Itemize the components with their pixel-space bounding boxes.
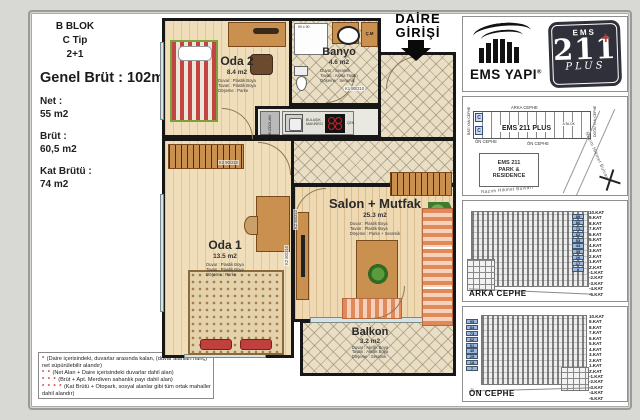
kitchen-strip: BUZDOLABI BULAŞIK MAKİNESİ ÇEK. — [255, 106, 381, 138]
entrance-line2: GİRİŞİ — [380, 26, 456, 40]
company-name: EMS YAPI® — [470, 67, 542, 82]
pillow — [200, 339, 232, 350]
site-building-outline: C C EMS 211 PLUS A BLOK — [473, 111, 591, 139]
sofa-cushion-line — [423, 247, 452, 249]
unit-number-cell: 40 — [466, 348, 478, 353]
kitchen-counter: BULAŞIK MAKİNESİ ÇEK. — [282, 111, 354, 135]
room-count: 2+1 — [40, 48, 110, 62]
cooktop — [325, 114, 345, 133]
on-floor-labels: 10.KAT9.KAT8.KAT7.KAT6.KAT5.KAT4.KAT3.KA… — [589, 314, 604, 401]
unit-number-cell: 95 — [466, 319, 478, 324]
unit-info-panel: B BLOK C Tip 2+1 Genel Brüt : 102m2 Net … — [40, 20, 160, 191]
washbasin — [337, 26, 360, 45]
unit-number-cell: 17 — [572, 261, 584, 266]
floor-label: -5.KAT — [589, 292, 604, 297]
washing-machine-label: Ç.M — [362, 31, 377, 36]
unit-number-cell: 73 — [466, 331, 478, 336]
window-oda1 — [160, 194, 164, 312]
site-a-blok-label: A BLOK — [562, 122, 576, 126]
fridge-label: BUZDOLABI — [268, 115, 272, 135]
unit-number-cell: 51 — [466, 343, 478, 348]
registered-mark: ® — [537, 70, 542, 76]
unit-type: C Tip — [40, 34, 110, 48]
floor-gross-area: Kat Brütü : 74 m2 — [40, 165, 160, 191]
unit-number-cell: 35 — [572, 249, 584, 254]
net-area: Net : 55 m2 — [40, 95, 160, 121]
entrance-callout: DAİRE GİRİŞİ — [380, 12, 456, 40]
park-residence-block: EMS 211 PARK & RESIDENCE — [479, 153, 539, 187]
washing-machine-cabinet: Ç.M — [361, 22, 378, 47]
sink — [285, 114, 303, 132]
unit-number-cell: 26 — [572, 255, 584, 260]
table-plant — [368, 264, 388, 284]
unit-number-cell: 44 — [572, 243, 584, 248]
arka-unit-column: 8980716253443526178 — [572, 214, 584, 273]
wardrobe — [168, 144, 244, 169]
burner — [328, 123, 335, 130]
sofa-cushion-line — [423, 287, 452, 289]
entrance-arrow-icon — [401, 48, 431, 61]
on-unit-column: 95847362514029187 — [466, 319, 478, 372]
unit-number-cell: 62 — [572, 232, 584, 237]
door-label-oda2: K2 90/210 — [218, 160, 239, 165]
entrance-line1: DAİRE — [380, 12, 456, 26]
window-oda2 — [160, 42, 164, 120]
site-plan: ARKA CEPHE C C EMS 211 PLUS A BLOK BATI … — [462, 96, 628, 196]
label-salon: Salon + Mutfak 25.3 m2 Duvar : Plastik B… — [310, 196, 440, 240]
street-name-right: Nazım Hikmet Bulvarı — [584, 131, 610, 181]
arka-floor-labels: 10.KAT9.KAT8.KAT7.KAT6.KAT5.KAT4.KAT3.KA… — [589, 210, 604, 297]
burner — [335, 123, 342, 130]
unit-number-cell: 84 — [466, 325, 478, 330]
unit-number-cell: 7 — [466, 366, 478, 371]
desk-item — [253, 28, 279, 34]
door-label-salon: K2 90/210 — [293, 209, 298, 230]
dishwasher-label: BULAŞIK MAKİNESİ — [306, 118, 323, 126]
sink-basin — [289, 118, 302, 131]
unit-number-cell: 71 — [572, 226, 584, 231]
unit-number-cell: 8 — [572, 267, 584, 272]
bed-double — [188, 270, 284, 355]
unit-c-marker: C — [475, 126, 483, 135]
shower-dimension: 90 x 90 — [298, 25, 309, 29]
door-label-oda1: K2 80/210 — [284, 245, 289, 266]
coat-rack — [390, 172, 452, 196]
elevation-on: 95847362514029187 10.KAT9.KAT8.KAT7.KAT6… — [462, 306, 628, 402]
block-name: B BLOK — [40, 20, 110, 34]
ems-211-badge: EMS 211 + PLUS — [548, 20, 622, 88]
gross-total-area: Genel Brüt : 102m2 — [40, 70, 160, 86]
elevation-arka: 8980716253443526178 10.KAT9.KAT8.KAT7.KA… — [462, 200, 628, 302]
label-oda1: Oda 1 13.5 m2 Duvar : Plastik BoyaTavan … — [188, 238, 262, 281]
unit-number-cell: 29 — [466, 354, 478, 359]
unit-number-cell: 89 — [572, 214, 584, 219]
site-on-cephe-label-1: ÖN CEPHE — [475, 139, 497, 144]
gross-area: Brüt : 60,5 m2 — [40, 130, 160, 156]
unit-number-cell: 53 — [572, 238, 584, 243]
floor-plan: 90 x 90 Ç.M BUZDOLABI BULAŞIK MAKİNESİ Ç… — [160, 14, 460, 406]
site-arka-cephe-label: ARKA CEPHE — [511, 105, 538, 110]
label-oda2: Oda 2 8.4 m2 Duvar : Plastik BoyaTavan :… — [200, 54, 274, 97]
on-title: ÖN CEPHE — [469, 389, 515, 398]
site-building-name: EMS 211 PLUS — [500, 125, 553, 132]
vanity — [332, 22, 359, 44]
unit-number-cell: 80 — [572, 220, 584, 225]
brand-box: EMS YAPI® EMS 211 + PLUS — [462, 16, 628, 92]
badge-plus-icon: + — [601, 30, 611, 48]
chair-oda1 — [244, 216, 258, 235]
unit-number-cell: 18 — [466, 360, 478, 365]
unit-number-cell: 62 — [466, 337, 478, 342]
label-balkon: Balkon 3.2 m2 Duvar : Akrilik BoyaTavan … — [310, 326, 430, 363]
arka-annex — [467, 259, 495, 291]
tv — [301, 235, 305, 277]
ems-yapi-logo-icon — [471, 23, 535, 63]
site-bati-label: BATI YAN CEPHE — [467, 107, 471, 135]
fridge: BUZDOLABI — [260, 111, 280, 135]
floor-label: -5.KAT — [589, 396, 604, 401]
drawer-label: ÇEK. — [347, 121, 355, 125]
site-on-cephe-label-2: ÖN CEPHE — [527, 141, 549, 146]
desk-oda2 — [228, 22, 286, 47]
arka-title: ARKA CEPHE — [469, 289, 527, 298]
label-banyo: Banyo 4.6 m2 Duvar : SeramikTavan : Asma… — [306, 46, 372, 87]
pillow — [240, 339, 272, 350]
unit-c-marker: C — [475, 113, 483, 122]
